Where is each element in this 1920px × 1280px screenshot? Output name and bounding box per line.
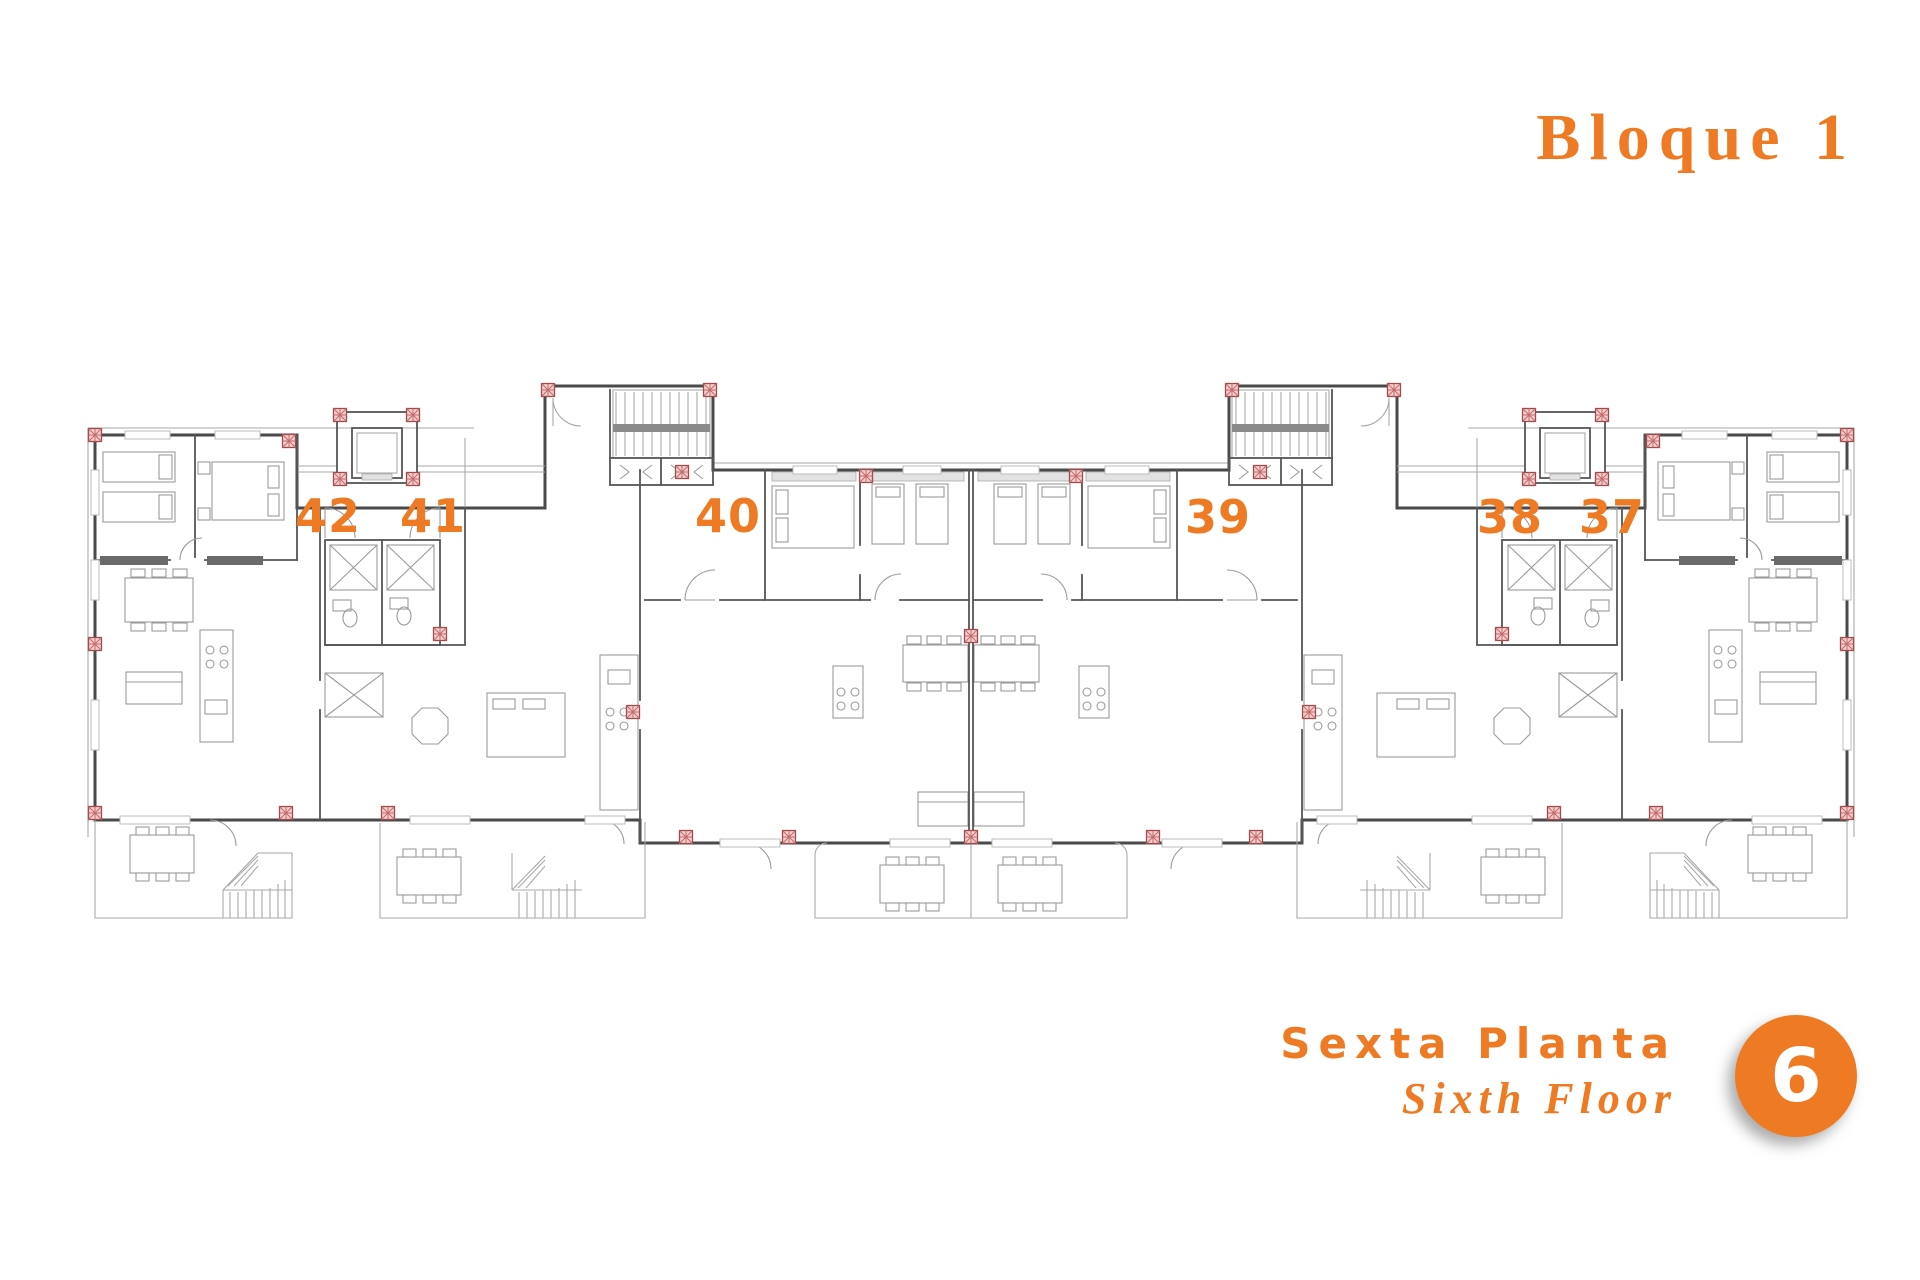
block-title: Bloque 1: [1536, 100, 1856, 176]
elevator-core: [334, 409, 420, 486]
apartment-number: 40: [695, 489, 761, 543]
floor-name-spanish: Sexta Planta: [1280, 1018, 1677, 1071]
terrace: [95, 820, 971, 918]
floor-plan-page: Bloque 1 42 41 40 39 38 37 Sexta Planta …: [0, 0, 1920, 1280]
center-party-wall: [965, 470, 978, 918]
floor-number-badge: 6: [1735, 1015, 1857, 1137]
floor-number: 6: [1770, 1039, 1822, 1113]
unit-42: [95, 435, 320, 820]
apartment-number: 39: [1185, 490, 1251, 544]
structural-columns: [89, 384, 873, 844]
unit-41: [325, 470, 640, 843]
apartment-number: 41: [400, 489, 466, 543]
unit-40: [645, 470, 968, 826]
floor-label: Sexta Planta Sixth Floor: [1280, 1018, 1677, 1126]
apartment-number: 38: [1477, 490, 1543, 544]
floor-name-english: Sixth Floor: [1280, 1071, 1677, 1126]
apartment-number: 42: [295, 489, 361, 543]
apartment-number: 37: [1579, 490, 1645, 544]
